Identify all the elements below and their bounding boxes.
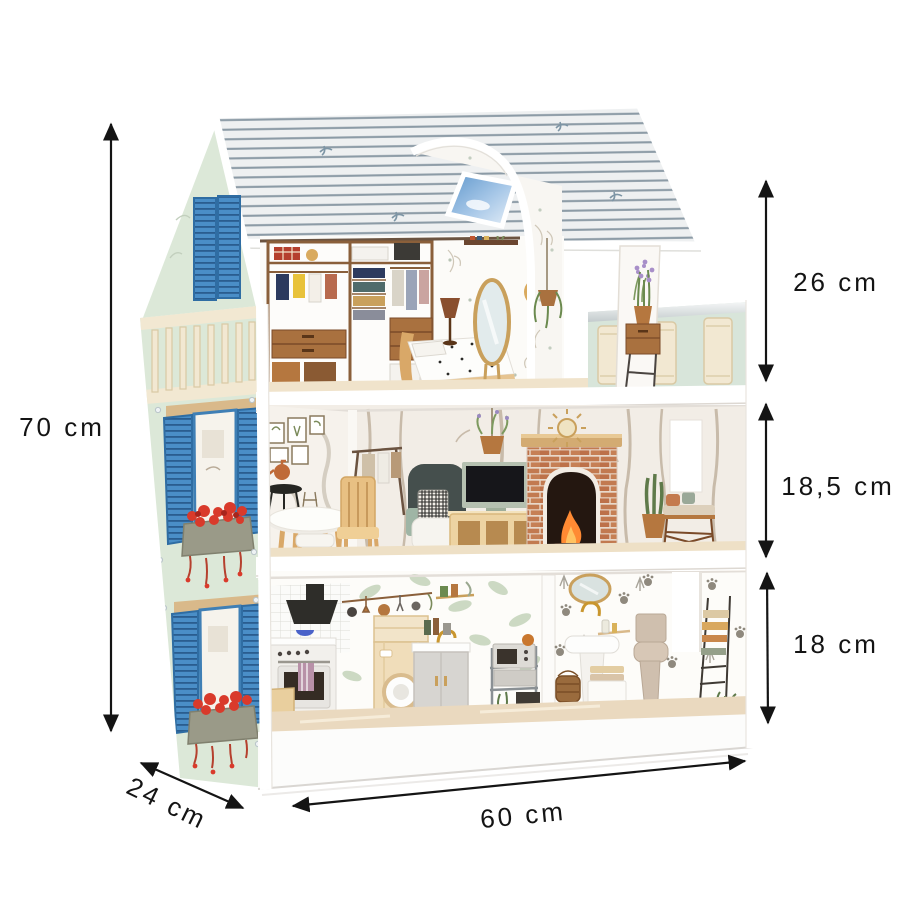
dollhouse-illustration xyxy=(0,0,899,900)
height-dimension-label: 70 cm xyxy=(14,412,110,443)
attic-bedroom xyxy=(260,224,564,398)
room-partition xyxy=(542,575,555,723)
folded-clothes-shelves xyxy=(352,268,386,320)
main-roof xyxy=(216,105,701,251)
living-window-opening xyxy=(670,420,702,492)
ground-floor-dimension-label: 18 cm xyxy=(786,629,886,660)
balcony-railing xyxy=(588,302,750,392)
product-dimension-diagram: 70 cm 26 cm 18,5 cm 18 cm 60 cm 24 cm xyxy=(0,0,899,900)
bathroom-mirror xyxy=(570,575,610,603)
front-right-post xyxy=(746,300,757,748)
left-side-wall xyxy=(140,305,266,788)
ground-floor-arrow xyxy=(767,573,768,723)
fireplace xyxy=(521,434,622,549)
top-floor-dimension-label: 26 cm xyxy=(786,267,886,298)
gable-shutters xyxy=(194,196,240,300)
bathroom-window-opening xyxy=(672,572,702,652)
potted-plant xyxy=(642,474,666,538)
tv xyxy=(462,462,528,514)
middle-floor-dimension-label: 18,5 cm xyxy=(778,471,898,502)
